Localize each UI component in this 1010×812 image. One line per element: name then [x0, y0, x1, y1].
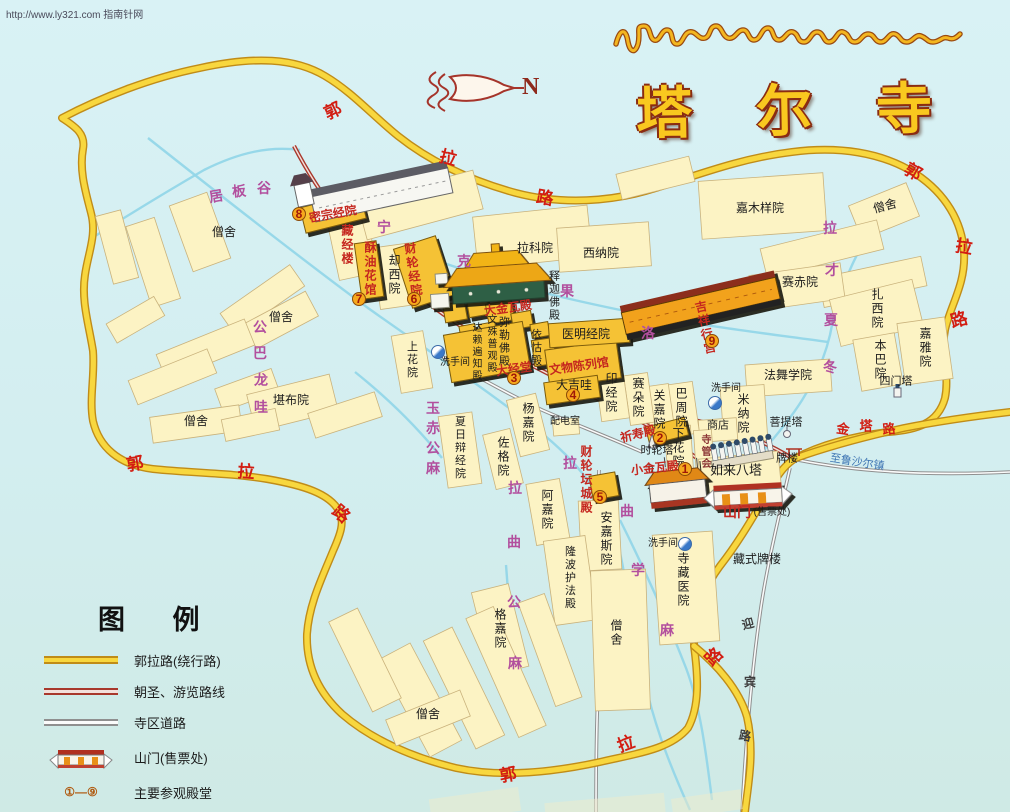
map-title: 塔尔寺 [635, 63, 996, 150]
hall-name-label: 山门 [723, 505, 751, 519]
road-name-label: 郭 [125, 454, 145, 474]
road-name-label: 路 [882, 422, 896, 436]
stream-name-label: 拉 [563, 456, 577, 470]
place-name-label: 菩提塔 [770, 418, 803, 429]
place-name-label: 僧舍 [184, 415, 208, 427]
stream-name-label: 公 [253, 320, 267, 334]
stream-name-label: 学 [631, 563, 645, 577]
place-name-label: 格嘉院 [494, 608, 506, 650]
legend-label: 寺区道路 [134, 713, 186, 732]
place-name-label: 米纳院 [737, 393, 749, 435]
stream-name-label: 曲 [620, 504, 634, 518]
place-name-label: 洗手间 [440, 358, 470, 368]
stream-name-label: 公 [426, 441, 440, 455]
place-name-label: 如来八塔 [710, 464, 762, 477]
road-name-label: 金 [836, 422, 851, 437]
place-name-label: 拉科院 [517, 242, 553, 254]
place-name-label: 却西院 [388, 254, 400, 296]
road-name-label: 路 [738, 729, 752, 743]
place-name-label: 巴周院 [675, 387, 687, 429]
place-name-label: 西纳院 [583, 247, 619, 259]
legend-row-ring-road: 郭拉路(绕行路) [42, 647, 322, 673]
hall-number-badge: 5 [593, 490, 607, 504]
place-name-label: 僧舍 [610, 619, 622, 647]
stream-name-label: 克 [457, 254, 471, 268]
stream-name-label: 哇 [254, 400, 268, 414]
legend-label: 朝圣、游览路线 [134, 682, 225, 701]
stream-name-label: 洛 [641, 326, 655, 340]
place-name-label: 配电室 [550, 417, 580, 427]
toilet-icon [678, 537, 692, 551]
hall-number-badge: 9 [705, 334, 719, 348]
place-name-label: 四门塔 [880, 377, 913, 388]
place-name-label: 达赖遍知殿 [470, 322, 480, 382]
place-name-label: 上花院 [406, 341, 417, 380]
place-name-label: 藏式牌楼 [733, 553, 781, 565]
gate-icon [42, 742, 120, 772]
stream-name-label: 才 [825, 263, 839, 277]
place-name-label: 僧舍 [269, 311, 293, 323]
stream-name-label: 宁 [377, 220, 391, 234]
legend-row-pilgrim-route: 朝圣、游览路线 [42, 678, 322, 704]
stream-name-label: 麻 [426, 461, 440, 475]
stream-name-label: 居 [208, 188, 224, 204]
place-name-label: 洗手间 [648, 539, 678, 549]
legend-row-main-halls: ①—⑨ 主要参观殿堂 [42, 779, 322, 805]
stream-name-label: 玉 [426, 401, 440, 415]
hall-number-badge: 4 [566, 388, 580, 402]
hall-number-badge: 8 [292, 207, 306, 221]
temple-road-swatch [42, 719, 120, 726]
stream-name-label: 麻 [508, 656, 522, 670]
stream-name-label: 赤 [426, 421, 440, 435]
place-name-label: 洗手间 [711, 384, 741, 394]
place-name-label: 时轮塔 [641, 446, 674, 457]
place-name-label: 嘉雅院 [919, 327, 931, 369]
place-name-label: 医明经院 [562, 328, 610, 340]
place-name-label: 关嘉院 [653, 389, 665, 431]
place-name-label: 商店 [707, 421, 729, 432]
hall-name-label: 藏经楼 [341, 224, 353, 266]
road-name-label: 路 [535, 188, 555, 208]
hall-number-badge: 2 [653, 431, 667, 445]
place-name-label: 杨嘉院 [522, 402, 534, 444]
watermark-url: http://www.ly321.com 指南针网 [6, 6, 143, 21]
road-name-label: 郭 [498, 765, 518, 785]
place-name-label: 法舞学院 [764, 369, 812, 381]
place-name-label: 嘉木样院 [736, 202, 784, 214]
place-name-label: 寺藏医院 [677, 552, 689, 608]
office-label: 寺管会 [699, 434, 709, 470]
place-name-label: 弥勒佛殿 [498, 316, 509, 368]
stream-name-label: 板 [231, 183, 246, 198]
legend: 图 例 郭拉路(绕行路) 朝圣、游览路线 寺区道路 [42, 598, 322, 812]
place-name-label: 夏日辩经院 [454, 416, 465, 481]
place-name-label: 僧舍 [212, 226, 236, 238]
map-page: http://www.ly321.com 指南针网 སྐུ་འབུམ་བྱམས་… [0, 0, 1010, 812]
place-name-label: 印经院 [605, 372, 617, 414]
place-name-label: 安嘉斯院 [600, 511, 612, 567]
stream-name-label: 巴 [253, 346, 267, 360]
tibetan-script-decoration [616, 26, 960, 51]
stream-name-label: 夏 [824, 313, 838, 327]
stream-name-label: 曲 [507, 535, 521, 549]
place-name-label: 赛朵院 [632, 377, 644, 419]
compass-arrow-icon [428, 72, 524, 111]
pilgrim-route-swatch [42, 688, 120, 695]
place-name-label: (售票处) [754, 508, 791, 518]
stream-name-label: 麻 [660, 623, 674, 637]
place-name-label: 释迦佛殿 [548, 270, 559, 322]
place-name-label: 堪布院 [273, 394, 309, 406]
legend-row-temple-road: 寺区道路 [42, 709, 322, 735]
road-name-label: 拉 [954, 237, 974, 257]
legend-row-gate: 山门(售票处) [42, 740, 322, 774]
compass-north-label: N [522, 74, 539, 101]
place-name-label: 扎西院 [871, 288, 883, 330]
hall-number-range: ①—⑨ [42, 785, 120, 799]
stream-name-label: 果 [560, 284, 574, 298]
stream-name-label: 龙 [254, 373, 268, 387]
place-name-label: 佐格院 [497, 436, 509, 478]
place-name-label: 隆波护法殿 [564, 546, 575, 611]
hall-name-label: 财轮坛城殿 [580, 445, 592, 515]
stream-name-label: 公 [507, 595, 521, 609]
legend-title: 图 例 [98, 598, 322, 637]
hall-number-badge: 1 [678, 462, 692, 476]
stream-name-label: 冬 [823, 360, 837, 374]
hall-number-badge: 6 [407, 292, 421, 306]
hall-name-label: 酥油花馆 [364, 241, 376, 297]
stream-name-label: 拉 [823, 221, 837, 235]
toilet-icon [431, 345, 445, 359]
faded-bottom-shapes [429, 787, 743, 812]
legend-label: 主要参观殿堂 [134, 783, 212, 802]
place-name-label: 僧舍 [416, 708, 440, 720]
ring-road-swatch [42, 656, 120, 664]
stream-name-label: 拉 [508, 481, 522, 495]
road-name-label: 宾 [744, 676, 756, 688]
road-name-label: 拉 [237, 463, 255, 481]
toilet-icon [708, 396, 722, 410]
legend-label: 郭拉路(绕行路) [134, 651, 221, 670]
place-name-label: 赛赤院 [782, 276, 818, 288]
hall-number-badge: 7 [352, 292, 366, 306]
legend-label: 山门(售票处) [134, 748, 208, 767]
place-name-label: 阿嘉院 [541, 489, 553, 531]
place-name-label: 文殊普观殿 [485, 314, 495, 374]
road-name-label: 塔 [859, 420, 872, 433]
stream-name-label: 谷 [257, 181, 271, 195]
place-name-label: 牌楼 [776, 454, 798, 465]
hall-number-badge: 3 [507, 371, 521, 385]
